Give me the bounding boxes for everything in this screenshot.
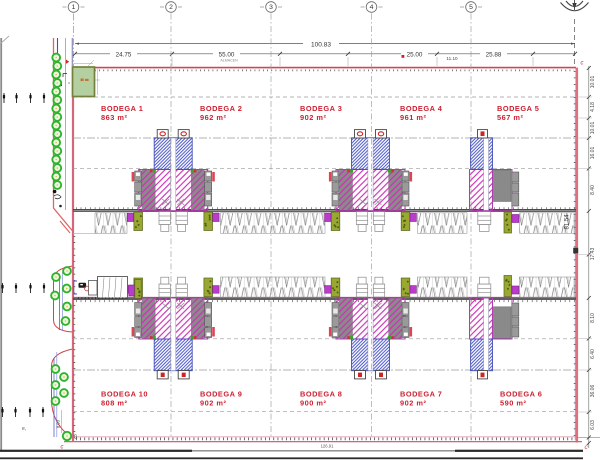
svg-text:567 m²: 567 m² <box>497 113 523 122</box>
svg-text:G: G <box>74 435 78 441</box>
svg-text:25.88: 25.88 <box>486 51 502 58</box>
svg-text:5: 5 <box>469 4 473 11</box>
svg-text:BODEGA 2: BODEGA 2 <box>200 104 242 113</box>
svg-text:c: c <box>581 61 584 67</box>
svg-text:BODEGA 7: BODEGA 7 <box>400 389 442 398</box>
svg-text:17.43: 17.43 <box>590 248 596 261</box>
svg-text:902 m²: 902 m² <box>400 398 426 407</box>
svg-text:6.40: 6.40 <box>590 349 596 359</box>
svg-text:962 m²: 962 m² <box>200 113 226 122</box>
svg-text:8.93: 8.93 <box>56 419 61 428</box>
svg-text:4.18: 4.18 <box>590 102 596 112</box>
svg-text:16.01: 16.01 <box>590 147 596 160</box>
svg-text:BODEGA 5: BODEGA 5 <box>497 104 539 113</box>
svg-text:100.83: 100.83 <box>311 41 331 48</box>
svg-text:BODEGA 8: BODEGA 8 <box>300 389 342 398</box>
svg-text:25.00: 25.00 <box>407 51 423 58</box>
svg-text:961 m²: 961 m² <box>400 113 426 122</box>
svg-text:BODEGA 3: BODEGA 3 <box>300 104 342 113</box>
svg-text:BODEGA 10: BODEGA 10 <box>101 389 148 398</box>
svg-text:6.03: 6.03 <box>590 420 596 430</box>
svg-text:10.01: 10.01 <box>590 76 596 89</box>
svg-text:902 m²: 902 m² <box>300 113 326 122</box>
svg-text:4: 4 <box>370 4 374 11</box>
svg-text:8.40: 8.40 <box>590 185 596 195</box>
svg-text:2: 2 <box>169 4 173 11</box>
svg-text:55.00: 55.00 <box>219 51 235 58</box>
svg-text:BODEGA 4: BODEGA 4 <box>400 104 443 113</box>
svg-text:590 m²: 590 m² <box>500 398 526 407</box>
svg-text:e,: e, <box>22 426 26 432</box>
svg-text:902 m²: 902 m² <box>200 398 226 407</box>
svg-text:24.75: 24.75 <box>116 51 132 58</box>
svg-text:11.10: 11.10 <box>446 56 458 61</box>
svg-text:808 m²: 808 m² <box>101 398 127 407</box>
svg-text:863 m²: 863 m² <box>101 113 127 122</box>
svg-text:81.54: 81.54 <box>565 214 571 230</box>
svg-text:900 m²: 900 m² <box>300 398 326 407</box>
svg-text:c: c <box>61 445 64 451</box>
svg-text:8.10: 8.10 <box>590 313 596 323</box>
svg-text:10.01: 10.01 <box>590 122 596 135</box>
svg-text:3: 3 <box>269 4 273 11</box>
svg-text:BODEGA 9: BODEGA 9 <box>200 389 242 398</box>
svg-text:126.91: 126.91 <box>321 444 334 449</box>
svg-text:BODEGA 6: BODEGA 6 <box>500 389 542 398</box>
svg-text:ALMACEN: ALMACEN <box>220 59 238 63</box>
svg-text:36.06: 36.06 <box>590 385 596 398</box>
svg-text:1: 1 <box>72 4 76 11</box>
svg-text:BODEGA 1: BODEGA 1 <box>101 104 143 113</box>
